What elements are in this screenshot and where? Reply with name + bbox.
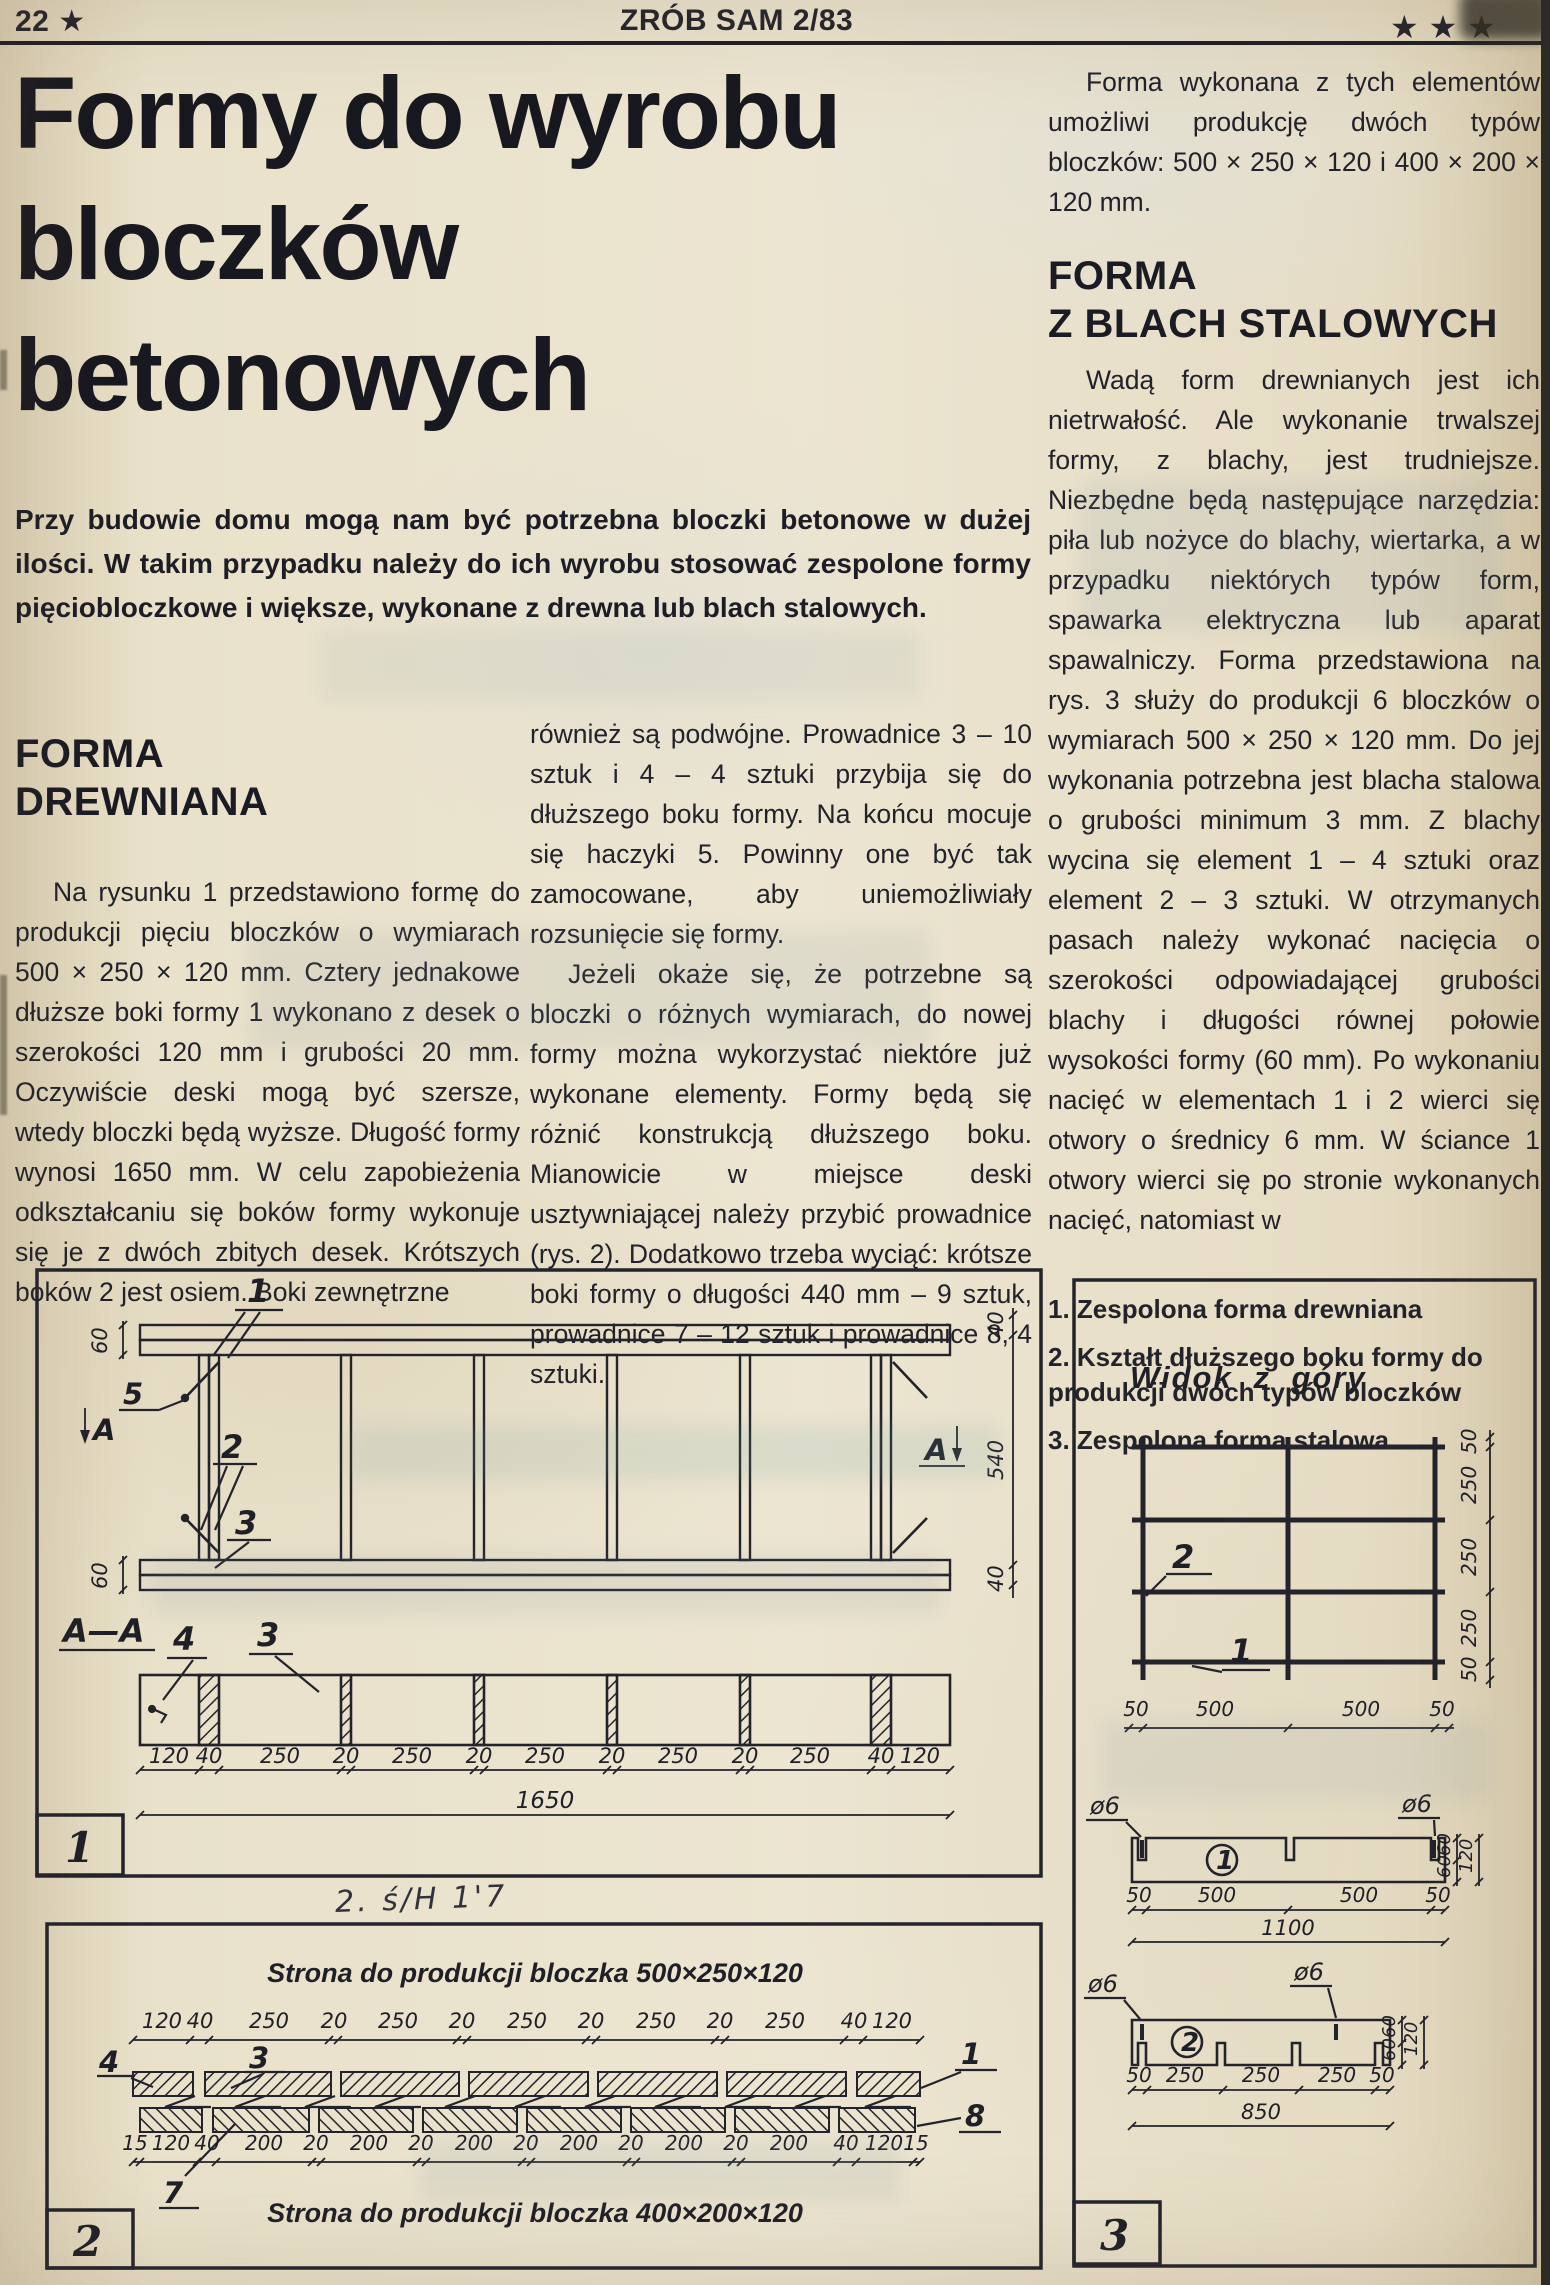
dim-label: 200 [665, 2131, 703, 2155]
page-number-text: 22 [15, 5, 49, 38]
dim-label: 20 [599, 1744, 626, 1768]
part-label: 1 [247, 1272, 269, 1310]
dim-label: 200 [770, 2131, 808, 2155]
magazine-page: 22 ★ ZRÓB SAM 2/83 ★ ★ ★ Formy do wyrobu… [0, 0, 1550, 2285]
dim-label: 500 [1342, 1697, 1380, 1721]
part-label: 3 [235, 1504, 257, 1542]
dim-label: 50 [1126, 2063, 1151, 2087]
part-label: 3 [249, 2041, 269, 2075]
figure-3-drawing: Widok z góry 2 1 50 250 250 250 50 50 50… [1072, 1278, 1537, 2268]
figure-1-drawing: 1 5 2 3 A A 60 60 40 540 40 A—A 4 3 120 … [35, 1268, 1043, 1878]
header-rule [0, 41, 1541, 45]
dim-label: 250 [525, 1744, 565, 1768]
bleed-through-stain [320, 630, 920, 700]
dim-label: 20 [408, 2131, 433, 2155]
section-arrowheads [80, 1430, 962, 1462]
dim-label: 50 [1457, 1429, 1481, 1454]
part-label: 8 [965, 2099, 985, 2133]
figure-3-frame [1074, 1280, 1535, 2266]
part-label: 4 [98, 2045, 119, 2079]
dim-label: 40 [194, 2131, 219, 2155]
left-column: FORMA DREWNIANA Na rysunku 1 przedstawio… [15, 730, 520, 1312]
part-label: 1 [1230, 1632, 1252, 1670]
body-paragraph: Na rysunku 1 przedstawiono formę do prod… [15, 872, 520, 1312]
dim-label: 20 [723, 2131, 748, 2155]
handwritten-annotation: 2. ś/H 1'7 [334, 1879, 508, 1920]
figure-2-drawing: Strona do produkcji bloczka 500×250×120 … [45, 1922, 1043, 2270]
element-badge: 1 [1216, 1846, 1234, 1876]
scan-edge-mark [0, 350, 7, 390]
dim-label: 250 [392, 1744, 432, 1768]
right-column: Forma wykonana z tych elementów umożliwi… [1048, 62, 1540, 1471]
dim-label: 500 [1196, 1697, 1234, 1721]
part-label: 4 [172, 1620, 195, 1658]
dim-label: 60 [88, 1327, 112, 1354]
fig3-right-chain: 50 250 250 250 50 [1457, 1429, 1481, 1682]
dim-label: 20 [513, 2131, 538, 2155]
dim-label: 15 [903, 2131, 928, 2155]
fig2-bottom-chain: 15 120 40 200 20 200 20 200 20 200 20 20… [122, 2131, 928, 2155]
dim-label: 20 [449, 2009, 476, 2033]
strip-caption-top: Strona do produkcji bloczka 500×250×120 [267, 1958, 803, 1988]
dim-label: 250 [249, 2009, 289, 2033]
dim-label: 120 [865, 2131, 903, 2155]
element-badge: 2 [1181, 2028, 1199, 2058]
scan-edge [1541, 0, 1550, 2285]
dim-label: 120 [900, 1744, 940, 1768]
section-mark: A [91, 1413, 115, 1447]
section-title: A—A [60, 1612, 145, 1650]
body-paragraph: Wadą form drewnianych jest ich nietrwało… [1048, 360, 1540, 1240]
dim-label: 250 [507, 2009, 547, 2033]
article-title: Formy do wyrobu bloczków betonowych [14, 48, 1034, 441]
part-label: 3 [257, 1616, 279, 1654]
dim-label: 20 [303, 2131, 328, 2155]
dim-label: 250 [658, 1744, 698, 1768]
dim-label: 60 [88, 1562, 112, 1589]
part-label: 2 [1172, 1538, 1194, 1576]
dim-label: 250 [1166, 2063, 1204, 2087]
element-2-chain: 50 250 250 250 50 850 [1126, 2063, 1394, 2124]
heading-line: Z BLACH STALOWYCH [1048, 300, 1540, 348]
dim-label: 60 [1434, 1855, 1455, 1878]
dim-label: 250 [636, 2009, 676, 2033]
dim-label: 250 [378, 2009, 418, 2033]
dim-label: 40 [187, 2009, 214, 2033]
dim-total-label: 850 [1241, 2100, 1281, 2124]
dim-label: 500 [1340, 1883, 1378, 1907]
dim-label: 250 [1457, 1609, 1481, 1647]
section-a-a-view [140, 1675, 950, 1745]
element-2-profile [1084, 1986, 1390, 2065]
strip-caption-bottom: Strona do produkcji bloczka 400×200×120 [267, 2198, 803, 2228]
figure-number: 3 [1100, 2211, 1129, 2260]
heading-line: FORMA [15, 730, 520, 778]
dim-label: 200 [560, 2131, 598, 2155]
dim-label: 60 [1379, 2038, 1400, 2061]
dim-label: 120 [149, 1744, 189, 1768]
dim-label: 50 [1429, 1697, 1454, 1721]
hole-diameter-label: ø6 [1293, 1958, 1324, 1986]
dim-label: 20 [578, 2009, 605, 2033]
dim-label: 250 [1242, 2063, 1280, 2087]
hole-diameter-label: ø6 [1087, 1970, 1118, 1998]
dim-label: 50 [1123, 1697, 1148, 1721]
dim-label: 50 [1457, 1657, 1481, 1682]
part-label: 5 [123, 1377, 143, 1411]
part-label: 1 [961, 2037, 981, 2071]
dim-label: 120 [1401, 2022, 1422, 2056]
hole-diameter-label: ø6 [1401, 1790, 1432, 1818]
dim-label: 40 [833, 2131, 858, 2155]
article-title-line2: bloczków [14, 179, 1034, 310]
dim-label: 200 [245, 2131, 283, 2155]
part-label: 2 [221, 1428, 243, 1466]
dim-label: 50 [1369, 2063, 1394, 2087]
dim-total-label: 1100 [1261, 1916, 1314, 1940]
element-1-profile [1086, 1818, 1445, 1882]
dim-label: 40 [196, 1744, 223, 1768]
form-side-strip [133, 2072, 920, 2132]
dim-label: 120 [1456, 1839, 1477, 1873]
dim-label: 200 [350, 2131, 388, 2155]
dim-label: 250 [260, 1744, 300, 1768]
dim-label: 250 [765, 2009, 805, 2033]
lead-paragraph: Przy budowie domu mogą nam być potrzebna… [15, 498, 1031, 630]
fig1-chain-labels: 120 40 250 20 250 20 250 20 250 20 250 4… [149, 1744, 940, 1814]
scan-edge-mark [0, 975, 7, 1115]
hole-diameter-label: ø6 [1089, 1792, 1120, 1820]
fig3-bottom-chain: 50 500 500 50 [1123, 1697, 1454, 1721]
dim-label: 60 [1379, 2015, 1400, 2038]
dim-label: 20 [732, 1744, 759, 1768]
dim-label: 15 [122, 2131, 147, 2155]
article-title-line3: betonowych [14, 310, 1034, 441]
magazine-title: ZRÓB SAM 2/83 [620, 4, 853, 38]
star-icon: ★ [58, 5, 85, 38]
dim-label: 20 [707, 2009, 734, 2033]
section-heading-forma-drewniana: FORMA DREWNIANA [15, 730, 520, 826]
dim-label: 40 [868, 1744, 895, 1768]
dim-label: 540 [984, 1440, 1008, 1480]
dim-label: 120 [872, 2009, 912, 2033]
page-number: 22 ★ [15, 4, 86, 39]
dim-label: 200 [455, 2131, 493, 2155]
fig3-dimension-lines [1124, 1430, 1494, 2130]
dim-label: 120 [142, 2009, 182, 2033]
dim-label: 250 [790, 1744, 830, 1768]
heading-line: DREWNIANA [15, 778, 520, 826]
dim-label: 20 [466, 1744, 493, 1768]
body-paragraph: również są podwójne. Prowadnice 3 – 10 s… [530, 714, 1032, 954]
figure-number: 1 [65, 1823, 94, 1872]
dim-label: 20 [321, 2009, 348, 2033]
fig2-top-chain: 120 40 250 20 250 20 250 20 250 20 250 4… [142, 2009, 912, 2033]
dim-label: 20 [618, 2131, 643, 2155]
article-title-line1: Formy do wyrobu [14, 48, 1034, 179]
wooden-form-plan-view [140, 1325, 950, 1590]
dim-label: 500 [1198, 1883, 1236, 1907]
dim-label: 60 [1434, 1833, 1455, 1856]
dim-label: 50 [1425, 1883, 1450, 1907]
top-view-heading: Widok z góry [1130, 1360, 1367, 1395]
dim-label: 120 [152, 2131, 190, 2155]
dim-label: 20 [333, 1744, 360, 1768]
dim-label: 40 [984, 1565, 1008, 1592]
dim-label: 50 [1126, 1883, 1151, 1907]
dim-label: 250 [1318, 2063, 1356, 2087]
figure-number: 2 [72, 2217, 102, 2266]
dim-label: 250 [1457, 1466, 1481, 1504]
part-label: 7 [163, 2176, 184, 2210]
body-paragraph: Forma wykonana z tych elementów umożliwi… [1048, 62, 1540, 222]
dim-label: 40 [984, 1311, 1008, 1338]
heading-line: FORMA [1048, 252, 1540, 300]
section-mark: A [923, 1433, 947, 1467]
dim-total-label: 1650 [516, 1788, 575, 1814]
section-heading-forma-z-blach: FORMA Z BLACH STALOWYCH [1048, 252, 1540, 348]
element-1-chain: 50 500 500 50 1100 [1126, 1883, 1450, 1940]
dim-label: 40 [841, 2009, 868, 2033]
dim-label: 250 [1457, 1538, 1481, 1576]
